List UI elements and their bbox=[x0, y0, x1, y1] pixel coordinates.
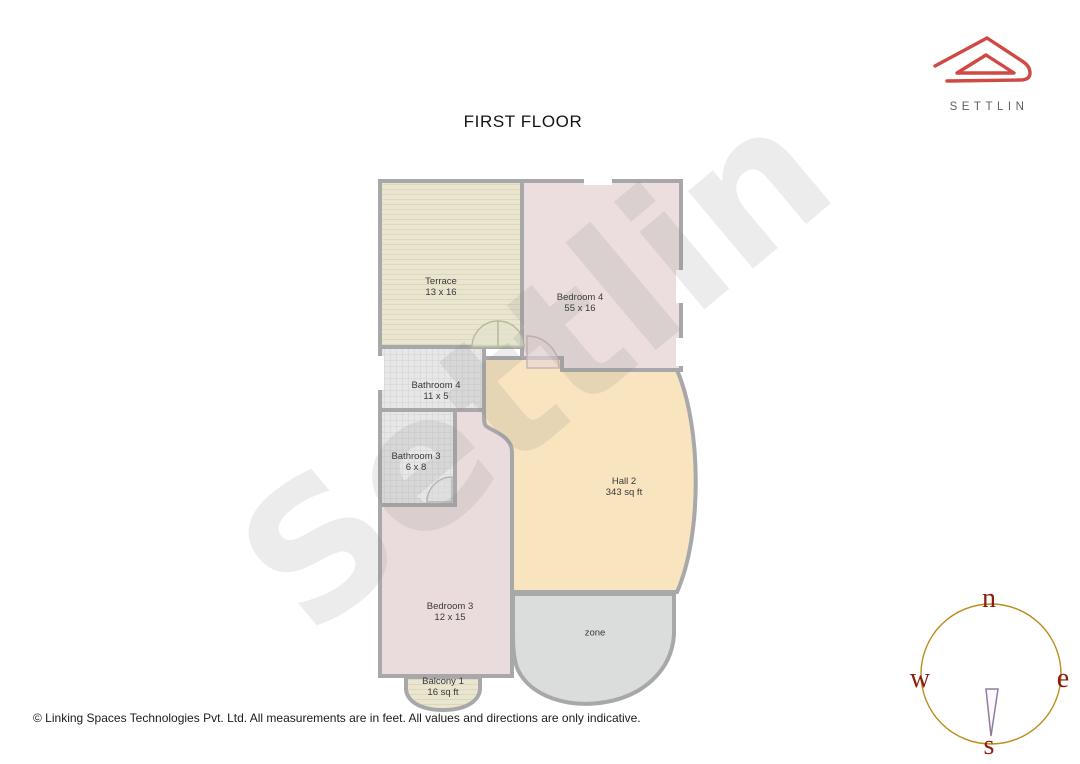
room-dims: 343 sq ft bbox=[606, 487, 642, 498]
room-name: Hall 2 bbox=[606, 476, 642, 487]
room-dims: 11 x 5 bbox=[411, 391, 460, 402]
compass: n e s w bbox=[905, 585, 1080, 764]
compass-west-label: w bbox=[910, 663, 931, 694]
wall-opening-bedroom4-top bbox=[584, 176, 612, 185]
room-zone bbox=[513, 594, 674, 704]
wall-opening-bedroom4-right-lower bbox=[676, 338, 685, 366]
room-dims: 6 x 8 bbox=[391, 462, 440, 473]
room-name: Terrace bbox=[425, 276, 457, 287]
room-label-balcony-1: Balcony 1 16 sq ft bbox=[422, 676, 464, 698]
room-name: Bathroom 4 bbox=[411, 380, 460, 391]
wall-opening-bathroom4-left bbox=[376, 356, 384, 390]
room-label-bathroom-4: Bathroom 4 11 x 5 bbox=[411, 380, 460, 402]
room-label-zone: zone bbox=[585, 628, 606, 639]
room-name: Balcony 1 bbox=[422, 676, 464, 687]
floor-plan-page: FIRST FLOOR SETTLIN bbox=[0, 0, 1080, 764]
room-hall-2 bbox=[484, 358, 696, 592]
room-name: zone bbox=[585, 628, 606, 639]
compass-south-label: s bbox=[984, 730, 995, 761]
footer-disclaimer: © Linking Spaces Technologies Pvt. Ltd. … bbox=[33, 711, 641, 725]
room-dims: 12 x 15 bbox=[427, 612, 473, 623]
room-label-bathroom-3: Bathroom 3 6 x 8 bbox=[391, 451, 440, 473]
room-label-bedroom-3: Bedroom 3 12 x 15 bbox=[427, 601, 473, 623]
room-name: Bathroom 3 bbox=[391, 451, 440, 462]
room-dims: 55 x 16 bbox=[557, 303, 603, 314]
wall-opening-bedroom4-right-upper bbox=[676, 270, 685, 303]
room-name: Bedroom 3 bbox=[427, 601, 473, 612]
compass-east-label: e bbox=[1057, 663, 1069, 694]
room-label-terrace: Terrace 13 x 16 bbox=[425, 276, 457, 298]
room-label-hall-2: Hall 2 343 sq ft bbox=[606, 476, 642, 498]
room-dims: 16 sq ft bbox=[422, 687, 464, 698]
room-dims: 13 x 16 bbox=[425, 287, 457, 298]
room-name: Bedroom 4 bbox=[557, 292, 603, 303]
room-label-bedroom-4: Bedroom 4 55 x 16 bbox=[557, 292, 603, 314]
compass-north-label: n bbox=[982, 585, 996, 614]
compass-needle-icon bbox=[986, 689, 998, 736]
